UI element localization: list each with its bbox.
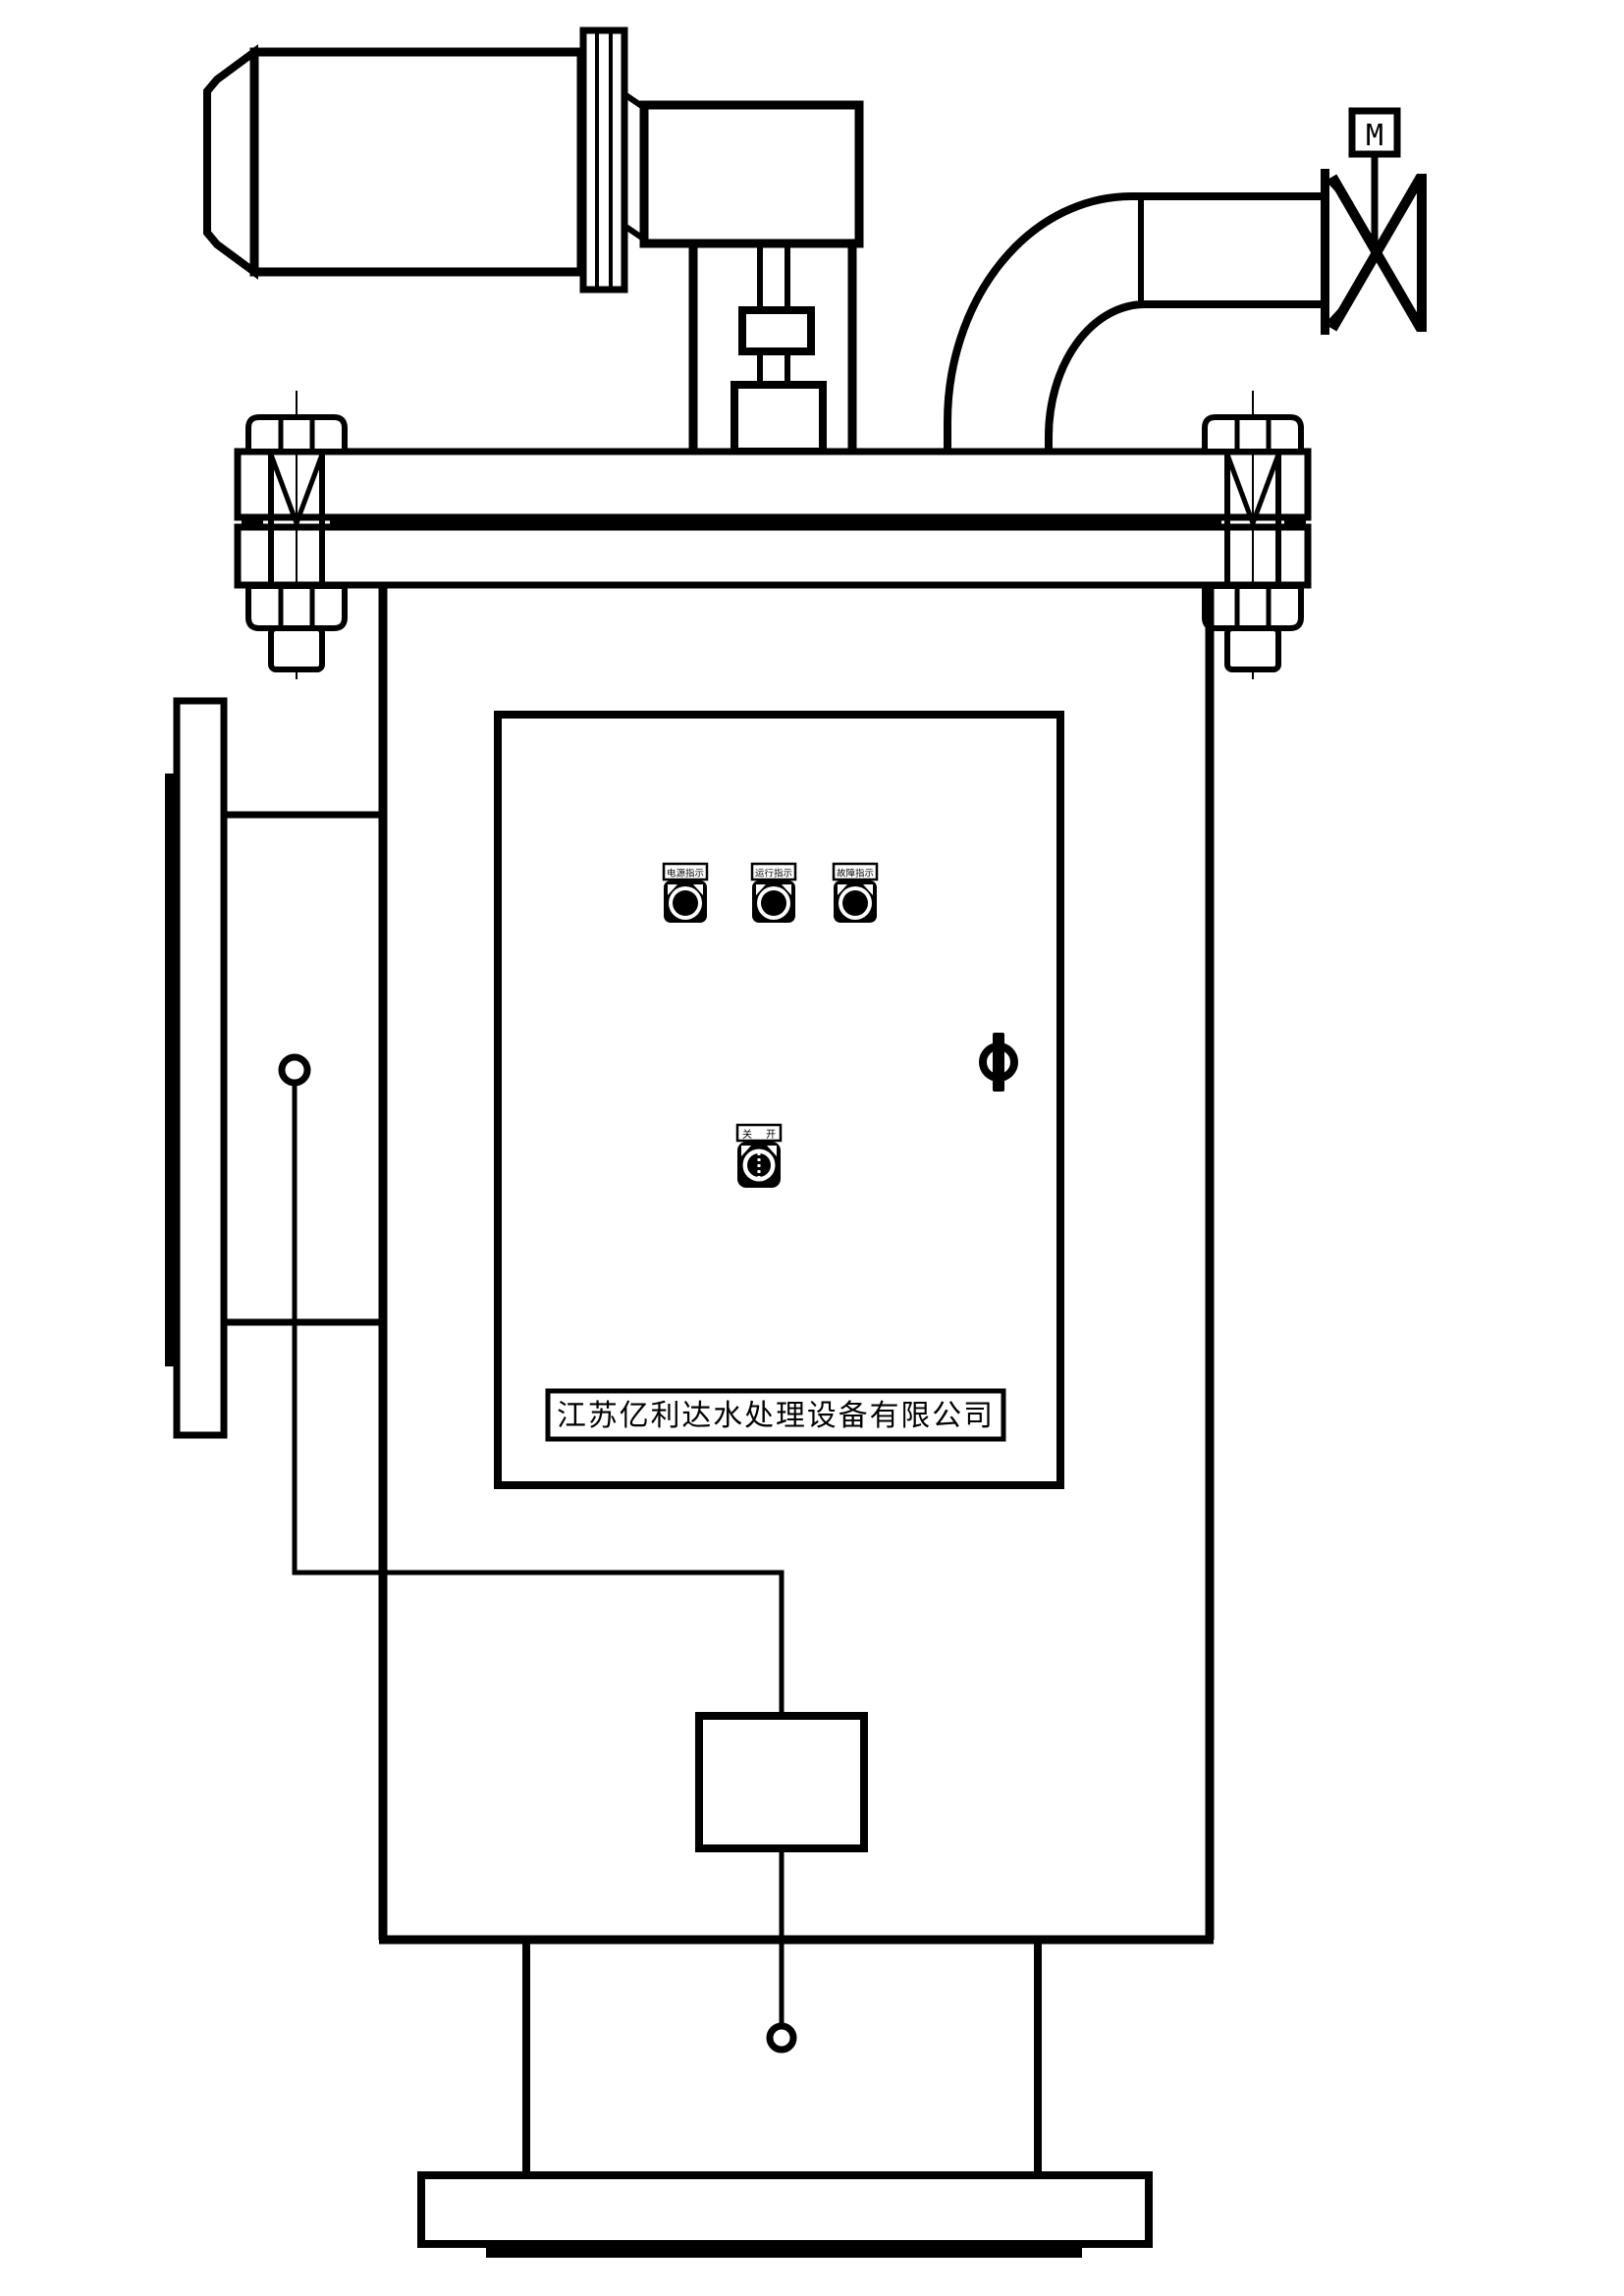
button-cap xyxy=(673,890,698,916)
base-plate xyxy=(421,2175,1149,2244)
stud-end xyxy=(271,628,322,669)
button-cap xyxy=(842,890,868,916)
hex-nut-top xyxy=(248,417,345,452)
stud-end xyxy=(1227,628,1278,669)
lower-flange-slab xyxy=(238,527,1308,585)
latch-bar-icon xyxy=(993,1033,1004,1092)
button-label: 故障指示 xyxy=(837,868,874,880)
hex-nut-top xyxy=(1205,417,1301,452)
stem-coupling xyxy=(742,310,811,351)
elbow-outer-wall xyxy=(947,196,1321,452)
button-label: 电源指示 xyxy=(667,868,704,880)
company-nameplate: 江苏亿利达水处理设备有限公司 xyxy=(548,1391,1003,1439)
gasket-segment xyxy=(242,516,263,528)
motor-body xyxy=(254,52,581,272)
technical-drawing-page: M xyxy=(0,0,1624,2296)
terminal-point-icon xyxy=(770,2026,793,2050)
company-name-text: 江苏亿利达水处理设备有限公司 xyxy=(557,1399,995,1433)
control-panel-door xyxy=(498,715,1060,1485)
button-cap xyxy=(761,890,786,916)
hex-nut-bottom xyxy=(248,586,345,628)
indicator-button-run: 运行指示 xyxy=(752,864,795,923)
control-panel: 电源指示 运行指示 故障指示 xyxy=(498,715,1060,1485)
stem-packing-box xyxy=(734,385,823,452)
gasket-segment xyxy=(1284,516,1306,528)
inlet-flange-plate xyxy=(177,701,224,1435)
gasket-band xyxy=(330,516,1221,528)
hex-nut-bottom xyxy=(1205,586,1301,628)
selector-switch: 关 开 xyxy=(737,1125,781,1188)
drawing-canvas: M xyxy=(0,0,1624,2296)
top-flange-joint xyxy=(238,452,1308,585)
motor-actuator-label: M xyxy=(1366,119,1383,153)
button-label: 运行指示 xyxy=(755,868,792,880)
switch-label-off: 关 xyxy=(742,1128,752,1141)
motor-end-cap xyxy=(207,52,254,272)
indicator-button-fault: 故障指示 xyxy=(834,864,877,923)
junction-box xyxy=(699,1716,864,1848)
sensor-probe-icon xyxy=(282,1057,307,1083)
motorized-butterfly-valve: M xyxy=(1321,111,1422,335)
motor-mount-flange xyxy=(583,30,624,290)
side-inlet-flange xyxy=(165,701,383,1435)
gearbox xyxy=(644,105,859,243)
base-shadow xyxy=(486,2246,1082,2258)
upper-flange-slab xyxy=(238,452,1308,517)
valve-flange-face xyxy=(1321,169,1329,335)
switch-label-on: 开 xyxy=(766,1130,776,1141)
drive-yoke xyxy=(693,243,852,452)
indicator-button-power: 电源指示 xyxy=(664,864,707,923)
inlet-flange-raised-face xyxy=(165,774,179,1366)
outlet-elbow-pipe xyxy=(947,196,1321,452)
